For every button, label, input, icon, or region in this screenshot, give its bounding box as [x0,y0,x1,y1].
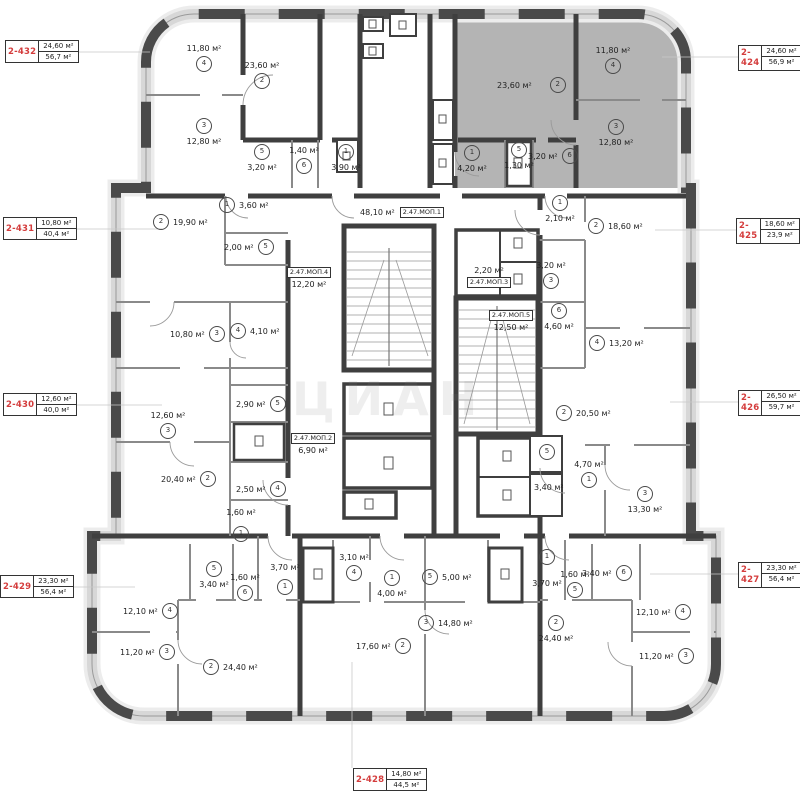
room-label: 12,10 м²4 [636,604,691,620]
room-label: 4,70 м²1 [564,460,614,488]
room-label: 14,20 м² [447,145,497,173]
room-area: 12,60 м² [151,411,186,420]
room-number: 1 [219,197,235,213]
room-number: 2 [203,659,219,675]
apartment-area-living: 12,60 м² [37,394,75,405]
room-label: 20,40 м²2 [161,471,216,487]
mop-code: 2.47.МОП.2 [291,433,335,444]
room-number: 6 [237,585,253,601]
room-number: 1 [233,526,249,542]
mop-code: 2.47.МОП.4 [287,267,331,278]
room-label: 11,80 м²4 [588,46,638,74]
room-label: 224,40 м² [531,615,581,643]
mop-area: 6,90 м² [298,446,328,455]
room-area: 14,80 м² [438,619,473,628]
room-area: 13,20 м² [609,339,644,348]
mop-code: 2.47.МОП.3 [467,277,511,288]
room-area: 18,60 м² [608,222,643,231]
room-area: 3,10 м² [339,553,369,562]
room-area: 5,00 м² [442,573,472,582]
room-area: 20,40 м² [161,475,196,484]
room-label: 312,80 м² [591,119,641,147]
apartment-number: 2-430 [4,394,37,415]
apartment-area-total: 56,9 м² [762,57,800,67]
room-number: 2 [556,405,572,421]
room-area: 17,60 м² [356,642,391,651]
room-label: 11,20 м²3 [120,644,175,660]
room-area: 2,10 м² [545,214,575,223]
room-label: 23,60 м²2 [497,77,566,93]
room-area: 1,60 м² [226,508,256,517]
room-number: 3 [543,273,559,289]
room-label: 13,60 м² [219,197,269,213]
apartment-number: 2-425 [737,219,761,243]
room-area: 12,80 м² [599,138,634,147]
apartment-area-living: 10,80 м² [37,218,75,229]
room-number: 3 [608,119,624,135]
room-number: 6 [616,565,632,581]
apartment-tag-2-430[interactable]: 2-430 12,60 м²40,0 м² [3,393,77,416]
watermark: ЦИАН [292,372,487,426]
room-label: 12,10 м² [535,195,585,223]
room-number: 5 [258,239,274,255]
room-area: 11,20 м² [120,648,155,657]
room-label: 11,20 м²3 [639,648,694,664]
floor-plan-page: ЦИАН 2-432 24,60 м²56,7 м² 2-431 10,80 м… [0,0,800,795]
apartment-number: 2-426 [739,391,762,415]
room-number: 3 [160,423,176,439]
room-label: 314,80 м² [418,615,473,631]
apartment-area-total: 56,7 м² [39,52,77,62]
room-area: 11,80 м² [187,44,222,53]
room-area: 11,20 м² [639,652,674,661]
room-number: 4 [230,323,246,339]
room-label: 5 [539,444,555,460]
room-number: 1 [581,472,597,488]
room-area: 13,30 м² [628,505,663,514]
room-area: 4,60 м² [544,322,574,331]
apartment-area-total: 23,9 м² [761,230,799,240]
room-number: 5 [511,142,527,158]
mop-stair1-label: 2.47.МОП.4 12,20 м² [281,267,337,289]
room-area: 3,40 м² [534,483,564,492]
room-number: 3 [209,326,225,342]
apartment-tag-2-431[interactable]: 2-431 10,80 м²40,4 м² [3,217,77,240]
room-number: 1 [384,570,400,586]
room-area: 24,40 м² [223,663,258,672]
apartment-number: 2-428 [354,769,387,790]
room-label: 413,20 м² [589,335,644,351]
room-label: 1,60 м²1 [216,508,266,542]
mop-area: 2,20 м² [474,266,504,275]
room-label: 17,60 м²2 [356,638,411,654]
room-area: 3,20 м² [536,261,566,270]
room-label: 64,60 м² [534,303,584,331]
apartment-number: 2-431 [4,218,37,239]
room-label: 2,90 м²5 [236,396,286,412]
room-area: 10,80 м² [170,330,205,339]
apartment-number: 2-427 [739,563,762,587]
room-area: 23,60 м² [497,81,532,90]
apartment-tag-2-424[interactable]: 2-424 24,60 м²56,9 м² [738,45,800,71]
room-area: 2,50 м² [236,485,266,494]
room-area: 2,00 м² [224,243,254,252]
room-area: 3,20 м² [528,152,558,161]
apartment-area-living: 23,30 м² [34,576,72,587]
room-number: 5 [422,569,438,585]
apartment-area-living: 24,60 м² [762,46,800,57]
room-area: 3,70 м² [270,563,300,572]
room-area: 12,80 м² [187,137,222,146]
room-label: 3,40 м² [534,483,564,492]
room-label: 23,60 м²2 [237,61,287,89]
room-label: 220,50 м² [556,405,611,421]
apartment-area-total: 59,7 м² [762,402,800,412]
apartment-area-total: 56,4 м² [34,587,72,597]
room-number: 1 [552,195,568,211]
mop-hall-label: 2.47.МОП.2 6,90 м² [285,433,341,455]
room-area: 19,90 м² [173,218,208,227]
room-label: 14,00 м² [367,570,417,598]
room-label: 44,10 м² [230,323,280,339]
apartment-area-living: 24,60 м² [39,41,77,52]
apartment-tag-2-432[interactable]: 2-432 24,60 м²56,7 м² [5,40,79,63]
room-area: 1,60 м² [230,573,260,582]
room-label: 224,40 м² [203,659,258,675]
room-number: 3 [159,644,175,660]
mop-corridor-label: 48,10 м² 2.47.МОП.1 [360,207,444,218]
room-area: 1,40 м² [289,146,319,155]
apartment-area-living: 14,80 м² [387,769,425,780]
mop-code: 2.47.МОП.5 [489,310,533,321]
apartment-tag-2-427[interactable]: 2-427 23,30 м²56,4 м² [738,562,800,588]
room-number: 5 [567,582,583,598]
room-label: 3,20 м²3 [526,261,576,289]
room-label: 12,60 м²3 [143,411,193,439]
room-label: 2,00 м²5 [224,239,274,255]
apartment-area-total: 56,4 м² [762,574,800,584]
room-number: 1 [464,145,480,161]
room-area: 23,60 м² [245,61,280,70]
room-label: 313,30 м² [620,486,670,514]
room-label: 12,10 м²4 [123,603,178,619]
room-label: 10,80 м²3 [170,326,225,342]
room-area: 11,80 м² [596,46,631,55]
apartment-area-total: 40,0 м² [37,405,75,415]
room-number: 3 [418,615,434,631]
room-area: 4,20 м² [457,164,487,173]
room-number: 6 [296,158,312,174]
mop-area: 12,50 м² [494,323,529,332]
room-area: 3,40 м² [582,569,612,578]
room-number: 4 [346,565,362,581]
room-label: 55,00 м² [422,569,472,585]
room-label: 13,90 м² [321,144,371,172]
apartment-area-living: 23,30 м² [762,563,800,574]
room-area: 12,10 м² [123,607,158,616]
room-number: 2 [153,214,169,230]
room-number: 5 [270,396,286,412]
mop-code: 2.47.МОП.1 [400,207,444,218]
room-number: 3 [637,486,653,502]
room-label: 3,40 м²6 [582,565,632,581]
room-number: 2 [395,638,411,654]
room-number: 3 [196,118,212,134]
room-label: 3,20 м²6 [528,148,578,164]
room-area: 12,10 м² [636,608,671,617]
apartment-area-total: 44,5 м² [387,780,425,790]
room-number: 4 [605,58,621,74]
apartment-tag-2-426[interactable]: 2-426 26,50 м²59,7 м² [738,390,800,416]
apartment-number: 2-432 [6,41,39,62]
apartment-tag-2-428[interactable]: 2-428 14,80 м²44,5 м² [353,768,427,791]
room-number: 6 [551,303,567,319]
apartment-number: 2-429 [1,576,34,597]
room-number: 1 [277,579,293,595]
room-area: 3,20 м² [247,163,277,172]
room-number: 2 [200,471,216,487]
room-number: 2 [548,615,564,631]
apartment-tag-2-429[interactable]: 2-429 23,30 м²56,4 м² [0,575,74,598]
room-area: 4,00 м² [377,589,407,598]
apartment-tag-2-425[interactable]: 2-425 18,60 м²23,9 м² [736,218,800,244]
room-number: 4 [675,604,691,620]
room-number: 4 [270,481,286,497]
apartment-number: 2-424 [739,46,762,70]
room-number: 2 [254,73,270,89]
room-area: 4,70 м² [574,460,604,469]
mop-shaft-label: 2,20 м² 2.47.МОП.3 [461,266,517,288]
room-area: 24,40 м² [539,634,574,643]
apartment-area-living: 18,60 м² [761,219,799,230]
room-number: 4 [589,335,605,351]
room-label: 2,50 м²4 [236,481,286,497]
room-number: 5 [539,444,555,460]
room-number: 6 [562,148,578,164]
room-number: 3 [678,648,694,664]
room-number: 1 [539,549,555,565]
room-number: 4 [162,603,178,619]
room-area: 2,90 м² [236,400,266,409]
room-label: 218,60 м² [588,218,643,234]
room-label: 219,90 м² [153,214,208,230]
room-area: 4,10 м² [250,327,280,336]
room-number: 1 [338,144,354,160]
room-label: 11,80 м²4 [179,44,229,72]
room-area: 3,60 м² [239,201,269,210]
room-number: 5 [254,144,270,160]
room-number: 2 [550,77,566,93]
mop-area: 48,10 м² [360,208,395,217]
mop-stair2-label: 2.47.МОП.5 12,50 м² [483,310,539,332]
room-number: 4 [196,56,212,72]
apartment-area-living: 26,50 м² [762,391,800,402]
mop-area: 12,20 м² [292,280,327,289]
room-area: 3,90 м² [331,163,361,172]
room-label: 3,70 м²1 [260,563,310,595]
room-label: 312,80 м² [179,118,229,146]
room-area: 20,50 м² [576,409,611,418]
room-number: 2 [588,218,604,234]
apartment-area-total: 40,4 м² [37,229,75,239]
